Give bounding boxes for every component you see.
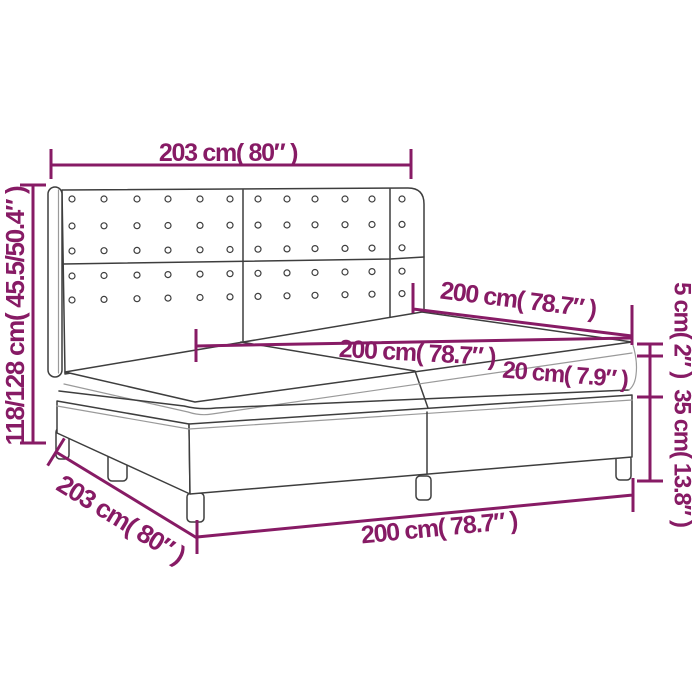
tufting-button bbox=[312, 270, 318, 276]
tufting-button bbox=[399, 268, 405, 274]
tufting-button bbox=[255, 270, 261, 276]
tufting-button bbox=[165, 223, 171, 229]
tufting-button bbox=[101, 296, 107, 302]
tufting-button bbox=[399, 221, 405, 227]
tufting-button bbox=[342, 222, 348, 228]
tufting-button bbox=[284, 246, 290, 252]
tufting-button bbox=[255, 196, 261, 202]
tufting-button bbox=[284, 196, 290, 202]
dim-label-mattress-height: 20 cm( 7.9″ ) bbox=[501, 357, 628, 394]
tufting-button bbox=[284, 293, 290, 299]
dim-label-headboard-width-top: 203 cm( 80″ ) bbox=[159, 139, 298, 167]
tufting-button bbox=[69, 196, 75, 202]
dim-label-base-height: 35 cm( 13.8″ ) bbox=[669, 389, 696, 527]
tufting-button bbox=[255, 246, 261, 252]
dim-label-total-height-left: 118/128 cm( 45.5/50.4″ ) bbox=[0, 186, 30, 445]
tufting-button bbox=[312, 222, 318, 228]
dim-label-bed-length-bottom: 200 cm( 78.7″ ) bbox=[360, 506, 519, 549]
tufting-button bbox=[134, 223, 140, 229]
tufting-button bbox=[69, 223, 75, 229]
tufting-button bbox=[399, 245, 405, 251]
tufting-button bbox=[284, 270, 290, 276]
tufting-button bbox=[227, 247, 233, 253]
tufting-button bbox=[255, 293, 261, 299]
bed-dimension-diagram: 203 cm( 80″ ) 118/128 cm( 45.5/50.4″ ) 2… bbox=[0, 0, 700, 700]
tufting-button bbox=[165, 196, 171, 202]
tufting-button bbox=[197, 295, 203, 301]
mattress-right-end-curve bbox=[629, 342, 637, 390]
tufting-button bbox=[134, 296, 140, 302]
tufting-button bbox=[101, 273, 107, 279]
tufting-button bbox=[165, 272, 171, 278]
tufting-button bbox=[312, 292, 318, 298]
tufting-button bbox=[134, 196, 140, 202]
tufting-button bbox=[255, 222, 261, 228]
tufting-button bbox=[134, 272, 140, 278]
dim-line-right-heights bbox=[637, 344, 663, 481]
tufting-button bbox=[342, 196, 348, 202]
tufting-button bbox=[69, 273, 75, 279]
tufting-button bbox=[197, 196, 203, 202]
tufting-button bbox=[165, 247, 171, 253]
tufting-button bbox=[342, 269, 348, 275]
tufting-button bbox=[369, 196, 375, 202]
tufting-button bbox=[197, 247, 203, 253]
tufting-button bbox=[227, 196, 233, 202]
tufting-button bbox=[227, 222, 233, 228]
tufting-button bbox=[342, 292, 348, 298]
tufting-button bbox=[369, 222, 375, 228]
tufting-button bbox=[312, 196, 318, 202]
tufting-button bbox=[342, 245, 348, 251]
tufting-button bbox=[101, 196, 107, 202]
tufting-button bbox=[227, 271, 233, 277]
tufting-button bbox=[101, 223, 107, 229]
tufting-button bbox=[197, 222, 203, 228]
headboard-left-wing bbox=[48, 187, 62, 377]
tufting-button bbox=[284, 222, 290, 228]
tufting-button bbox=[165, 295, 171, 301]
tufting-button bbox=[369, 291, 375, 297]
tufting-button bbox=[227, 294, 233, 300]
bed-leg bbox=[416, 476, 431, 500]
base-front-face bbox=[189, 395, 632, 494]
tufting-button bbox=[69, 248, 75, 254]
tufting-button bbox=[101, 248, 107, 254]
tufting-button bbox=[369, 245, 375, 251]
tufting-button bbox=[369, 269, 375, 275]
bed-leg bbox=[187, 493, 204, 522]
tufting-button bbox=[69, 297, 75, 303]
dim-label-topper-height: 5 cm( 2″ ) bbox=[669, 282, 696, 378]
tufting-button bbox=[312, 246, 318, 252]
tufting-button bbox=[197, 271, 203, 277]
tufting-button bbox=[399, 196, 405, 202]
tufting-button bbox=[399, 291, 405, 297]
tufting-button bbox=[134, 247, 140, 253]
